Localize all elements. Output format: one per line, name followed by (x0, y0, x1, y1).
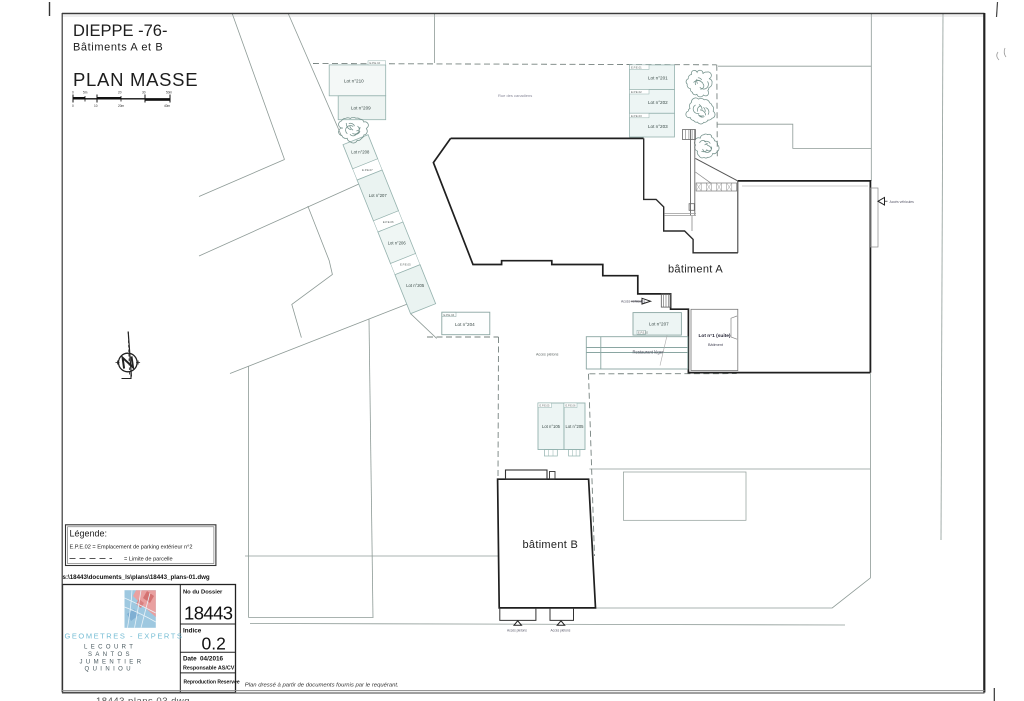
svg-text:E.P.E.02: E.P.E.02 (631, 90, 642, 94)
svg-text:SANTOS: SANTOS (88, 652, 133, 658)
svg-text:E.P.E.05: E.P.E.05 (540, 404, 550, 408)
svg-text:Accès véhicules: Accès véhicules (621, 300, 646, 304)
svg-text:30: 30 (142, 91, 146, 95)
svg-text:E.P.E.07: E.P.E.07 (362, 168, 373, 172)
svg-text:Lot n°207: Lot n°207 (649, 322, 669, 327)
svg-text:40m: 40m (164, 104, 171, 108)
svg-text:0: 0 (72, 91, 74, 95)
svg-text:= Limite de parcelle: = Limite de parcelle (124, 557, 173, 563)
svg-text:Indice: Indice (183, 628, 202, 635)
svg-text:Bâtiments A et B: Bâtiments A et B (73, 42, 163, 54)
svg-text:E.P.E.04: E.P.E.04 (444, 313, 455, 317)
svg-text:Date: Date (183, 656, 197, 663)
svg-text:E.P.E.10: E.P.E.10 (370, 61, 381, 65)
svg-text:5m: 5m (83, 91, 88, 95)
svg-text:Lot n°1 (suite): Lot n°1 (suite) (699, 333, 731, 339)
svg-text:E.P.E.03: E.P.E.03 (631, 114, 642, 118)
svg-text:Lot n°201: Lot n°201 (648, 76, 668, 81)
svg-text:QUINIOU: QUINIOU (85, 667, 134, 673)
svg-text:Lot n°208: Lot n°208 (351, 150, 370, 155)
svg-text:Accès piétons: Accès piétons (536, 353, 559, 357)
svg-text:Bâtiment: Bâtiment (708, 343, 724, 347)
svg-text:Lot n°202: Lot n°202 (648, 100, 668, 105)
svg-text:Lot n°210: Lot n°210 (344, 79, 364, 84)
svg-text:Lot n°204: Lot n°204 (455, 322, 475, 327)
svg-text:Lot n°105: Lot n°105 (542, 424, 561, 429)
svg-text:Responsable AS/CV: Responsable AS/CV (183, 666, 235, 672)
svg-text:E.P.E.06: E.P.E.06 (566, 404, 576, 408)
svg-text:Accès véhicules: Accès véhicules (890, 200, 915, 204)
svg-text:DIEPPE -76-: DIEPPE -76- (73, 22, 167, 40)
svg-text:Rue des canadiens: Rue des canadiens (498, 93, 532, 98)
svg-text:04/2016: 04/2016 (200, 656, 224, 663)
svg-text:0.2: 0.2 (202, 634, 226, 654)
svg-text:E.P.E.01: E.P.E.01 (631, 65, 642, 69)
svg-text:Lot n°203: Lot n°203 (648, 124, 668, 129)
svg-text:E.P.E.02: E.P.E.02 (638, 331, 648, 335)
svg-text:Accès piétons: Accès piétons (507, 629, 527, 633)
svg-text:GEOMETRES - EXPERTS: GEOMETRES - EXPERTS (65, 632, 184, 641)
svg-text:bâtiment B: bâtiment B (523, 539, 579, 551)
svg-text:JUMENTIER: JUMENTIER (80, 659, 145, 665)
svg-text:Légende:: Légende: (70, 529, 108, 539)
svg-text:10: 10 (94, 104, 98, 108)
svg-text:Lot n°206: Lot n°206 (388, 240, 407, 245)
svg-text:Lot n°205: Lot n°205 (406, 283, 425, 288)
svg-text:50m: 50m (166, 91, 173, 95)
svg-text:s:\18443\documents_ls\plans\18: s:\18443\documents_ls\plans\18443_plans-… (63, 574, 210, 581)
svg-text:LECOURT: LECOURT (84, 645, 136, 651)
svg-text:E.P.E.05: E.P.E.05 (400, 263, 411, 267)
svg-text:Accès piétons: Accès piétons (551, 629, 571, 633)
svg-text:Lot n°205: Lot n°205 (566, 424, 585, 429)
svg-text:18443 plans 03 dwg: 18443 plans 03 dwg (96, 696, 190, 701)
svg-text:Lot n°207: Lot n°207 (369, 193, 388, 198)
svg-text:Restaurant léger: Restaurant léger (633, 349, 665, 354)
svg-text:E.P.E.02 = Emplacement de park: E.P.E.02 = Emplacement de parking extéri… (70, 545, 193, 551)
svg-text:20m: 20m (118, 104, 125, 108)
svg-text:Lot n°209: Lot n°209 (351, 106, 371, 111)
svg-text:20: 20 (118, 91, 122, 95)
svg-text:Reproduction Reservee: Reproduction Reservee (184, 680, 240, 686)
svg-text:0: 0 (72, 104, 74, 108)
svg-text:bâtiment A: bâtiment A (668, 264, 723, 276)
svg-text:Plan dressé à partir de docume: Plan dressé à partir de documents fourni… (245, 683, 399, 689)
svg-text:E.P.E.06: E.P.E.06 (383, 220, 394, 224)
svg-text:18443: 18443 (184, 603, 233, 624)
svg-text:No du Dossier: No du Dossier (183, 590, 223, 596)
svg-text:PLAN MASSE: PLAN MASSE (73, 69, 198, 90)
